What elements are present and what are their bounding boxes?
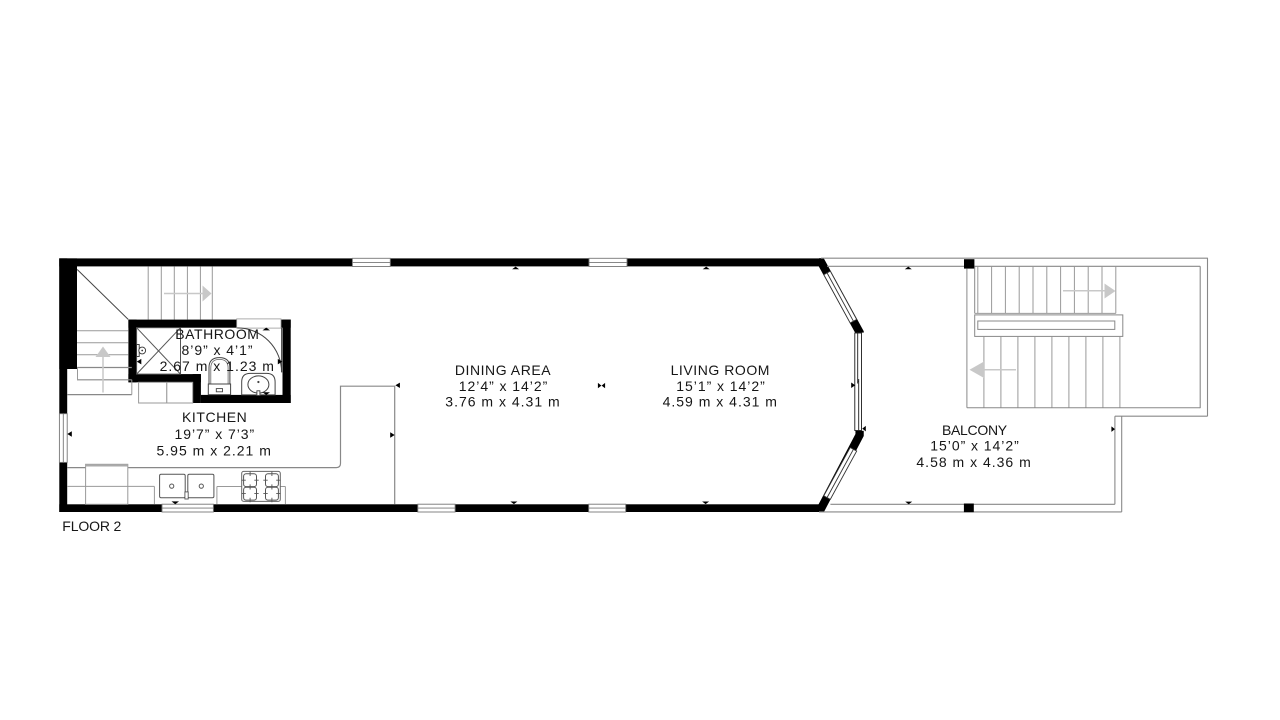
svg-text:4.58 m x 4.36 m: 4.58 m x 4.36 m <box>916 454 1031 470</box>
svg-text:KITCHEN: KITCHEN <box>182 409 247 425</box>
svg-text:4.59 m x 4.31 m: 4.59 m x 4.31 m <box>663 394 778 410</box>
svg-text:FLOOR 2: FLOOR 2 <box>62 518 121 534</box>
svg-text:8’9” x 4’1”: 8’9” x 4’1” <box>182 342 254 358</box>
svg-text:LIVING ROOM: LIVING ROOM <box>671 362 770 378</box>
svg-text:2.67 m x 1.23 m: 2.67 m x 1.23 m <box>160 358 275 374</box>
svg-text:12’4” x 14’2”: 12’4” x 14’2” <box>459 378 548 394</box>
svg-text:5.95 m x 2.21 m: 5.95 m x 2.21 m <box>157 443 272 459</box>
svg-text:19’7” x 7’3”: 19’7” x 7’3” <box>174 426 255 442</box>
svg-text:15’0” x 14’2”: 15’0” x 14’2” <box>930 438 1019 454</box>
svg-text:BATHROOM: BATHROOM <box>175 326 259 342</box>
svg-text:15’1” x 14’2”: 15’1” x 14’2” <box>676 378 765 394</box>
svg-text:DINING AREA: DINING AREA <box>455 362 551 378</box>
svg-text:BALCONY: BALCONY <box>942 422 1008 438</box>
svg-text:3.76 m x 4.31 m: 3.76 m x 4.31 m <box>445 394 560 410</box>
